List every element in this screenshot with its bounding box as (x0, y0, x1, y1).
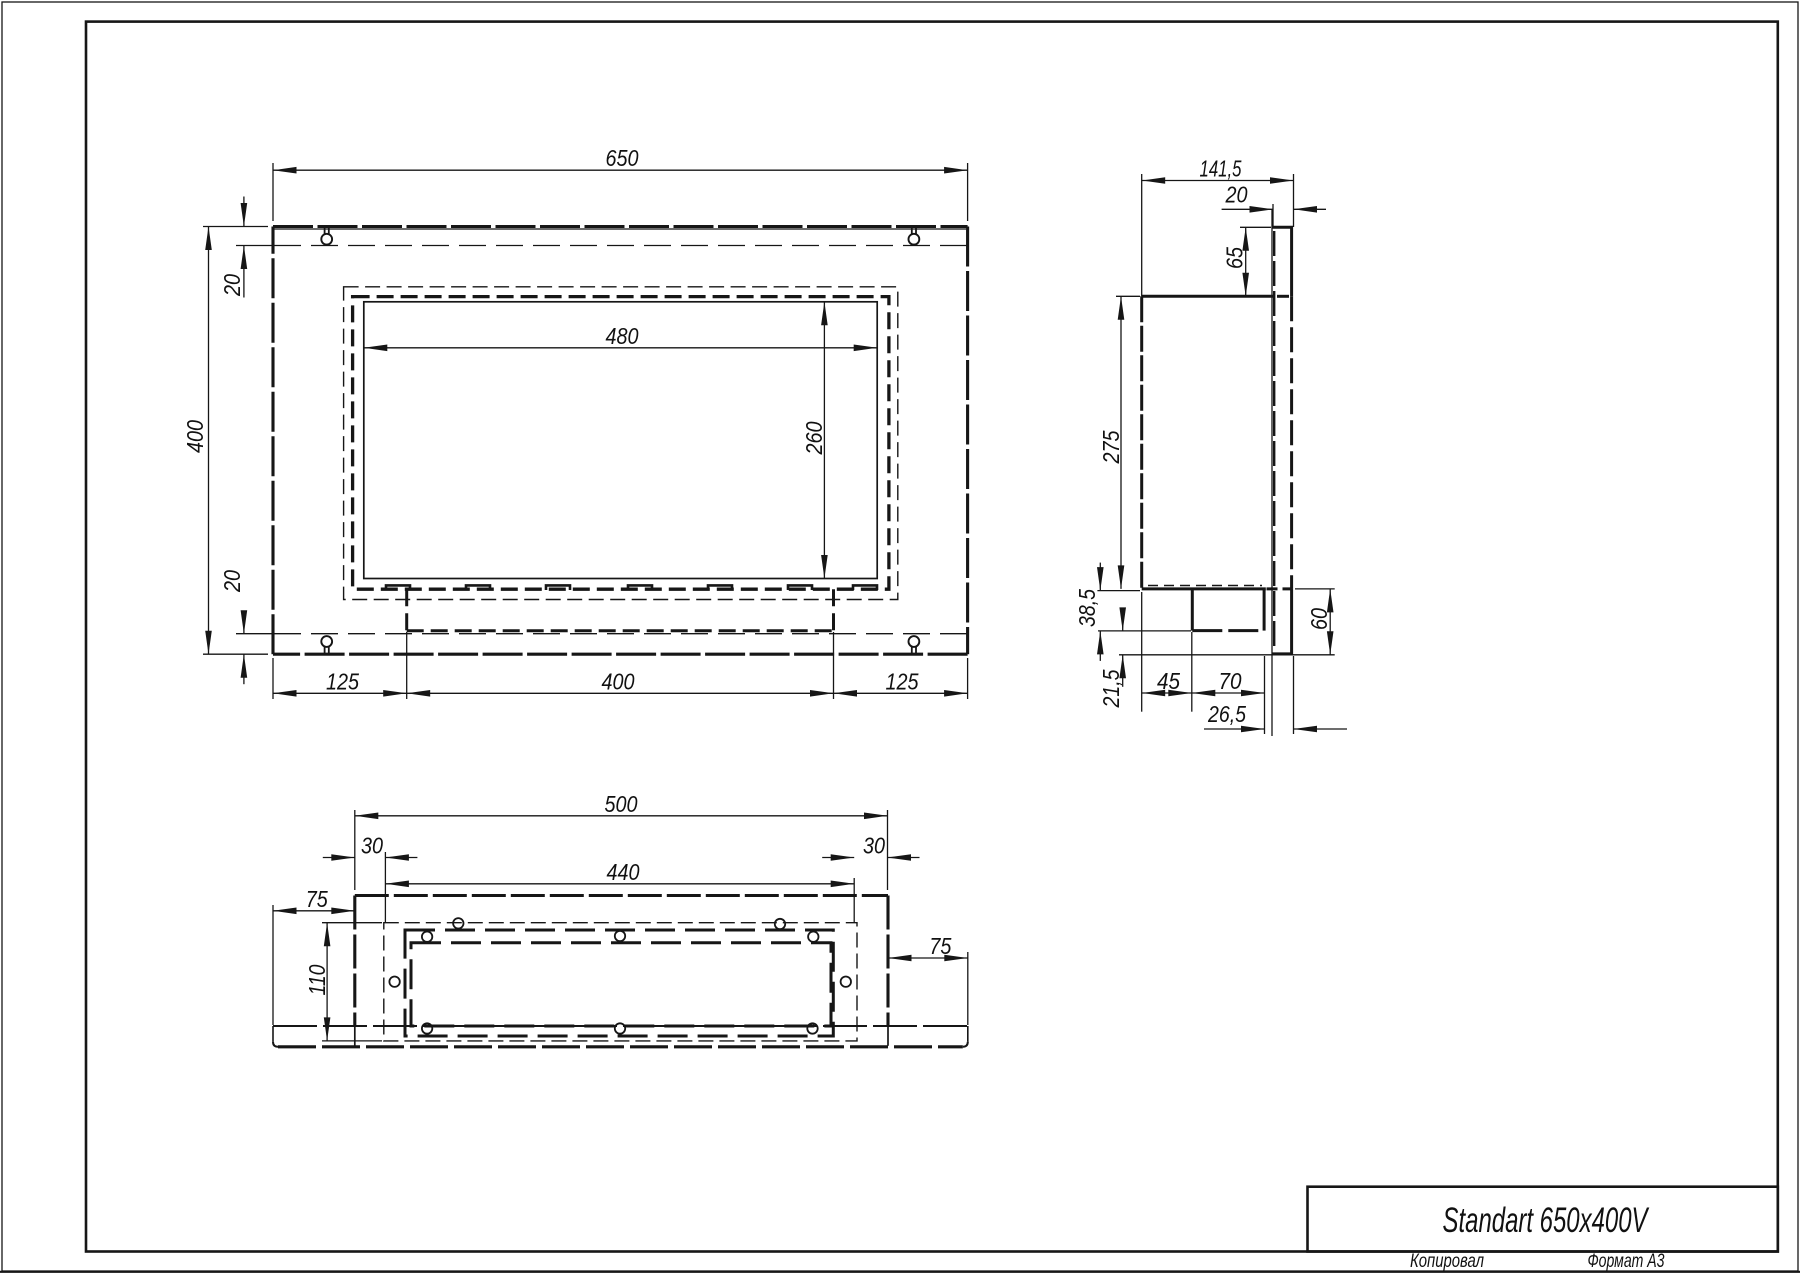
svg-text:275: 275 (1098, 430, 1124, 465)
svg-text:70: 70 (1219, 668, 1242, 694)
svg-text:Standart 650x400V: Standart 650x400V (1443, 1201, 1650, 1240)
svg-text:125: 125 (886, 668, 920, 694)
svg-text:Копировал: Копировал (1410, 1251, 1484, 1272)
svg-text:75: 75 (306, 886, 329, 912)
svg-text:400: 400 (602, 668, 635, 694)
svg-text:Формат А3: Формат А3 (1588, 1251, 1665, 1272)
svg-text:30: 30 (361, 833, 383, 859)
svg-text:38,5: 38,5 (1074, 588, 1100, 627)
svg-text:650: 650 (606, 145, 639, 171)
svg-text:30: 30 (863, 833, 885, 859)
svg-text:65: 65 (1222, 246, 1248, 269)
svg-text:500: 500 (605, 791, 638, 817)
svg-text:400: 400 (182, 420, 208, 453)
svg-text:20: 20 (219, 570, 245, 593)
svg-text:260: 260 (801, 422, 827, 456)
svg-text:45: 45 (1157, 668, 1181, 694)
svg-text:21,5: 21,5 (1098, 669, 1124, 709)
svg-text:110: 110 (304, 965, 330, 996)
svg-text:20: 20 (1225, 182, 1248, 208)
svg-text:60: 60 (1306, 608, 1332, 630)
svg-text:480: 480 (606, 323, 639, 349)
svg-text:26,5: 26,5 (1207, 701, 1247, 727)
svg-text:125: 125 (326, 668, 360, 694)
svg-text:20: 20 (219, 274, 245, 297)
svg-text:440: 440 (607, 859, 640, 885)
svg-text:75: 75 (929, 933, 952, 959)
svg-text:141,5: 141,5 (1200, 156, 1243, 182)
